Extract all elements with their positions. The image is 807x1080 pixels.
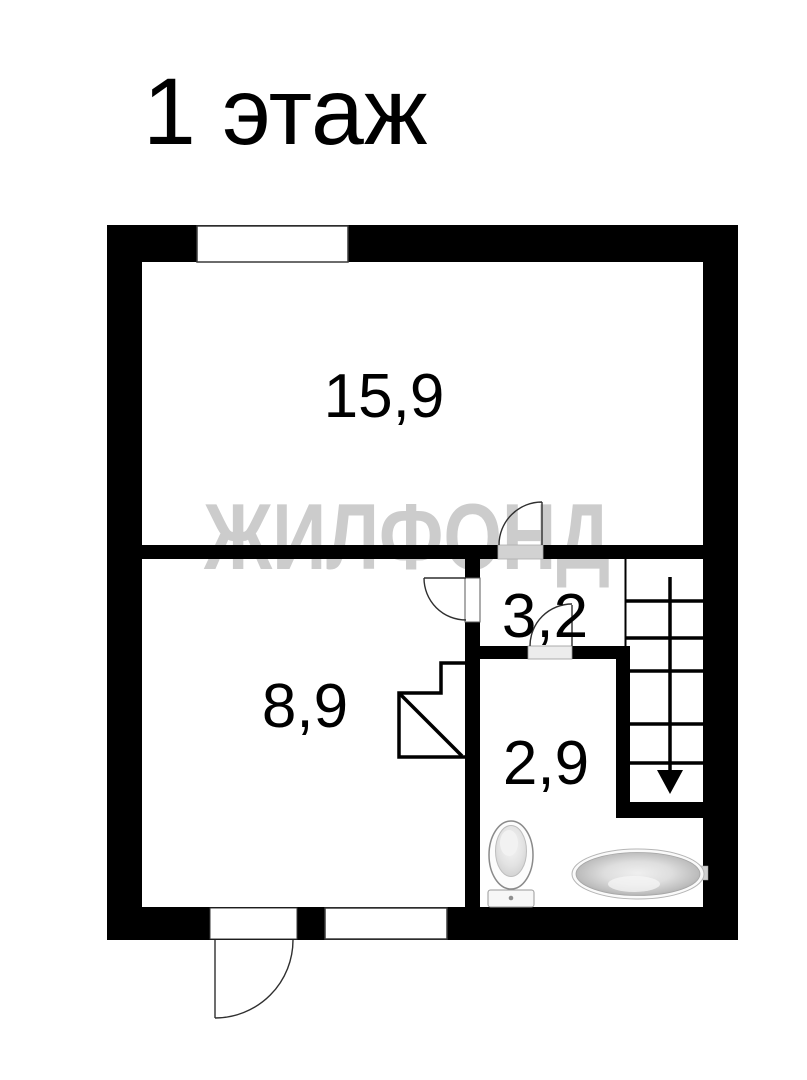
room-8-9-label: 8,9 xyxy=(262,672,348,741)
window-icon-top xyxy=(197,226,348,262)
outer-wall-right xyxy=(703,225,738,940)
inner-wall-horizontal xyxy=(142,545,703,559)
stairwell-bottom-wall xyxy=(616,802,703,818)
toilet-icon xyxy=(488,821,534,907)
bath-2-9-label: 2,9 xyxy=(503,729,589,798)
stairwell-left-wall xyxy=(616,646,630,818)
entry-door-opening xyxy=(210,908,297,939)
room-15-9-door-opening xyxy=(498,545,543,559)
watermark-text: ЖИЛФОНД xyxy=(203,484,610,589)
stairwell-floor xyxy=(626,559,704,803)
hall-3-2-label: 3,2 xyxy=(502,582,588,651)
room-15-9-label: 15,9 xyxy=(324,362,445,431)
outer-wall-left xyxy=(107,225,142,940)
window-icon-bottom xyxy=(325,908,447,939)
floor-plan-canvas: 1 этаж ЖИЛФОНД xyxy=(0,0,807,1080)
page-title: 1 этаж xyxy=(143,59,428,165)
room-8-9-door-opening xyxy=(465,578,480,622)
floor-plan-page: 1 этаж ЖИЛФОНД xyxy=(0,0,807,1080)
